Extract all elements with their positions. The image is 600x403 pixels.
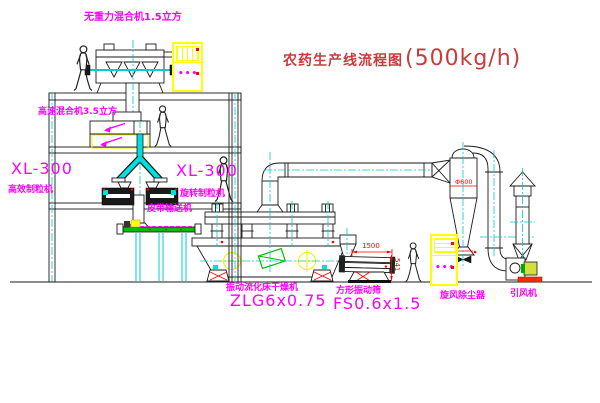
label-fan: 引风机 [510,290,537,299]
title-text: 农药生产线流程图 [283,50,403,70]
fan-motor [524,262,537,275]
power-light [196,48,199,51]
control-cabinet-upper: ••• [172,42,203,92]
page-title: 农药生产线流程图 (500kg/h) [283,46,521,71]
flow-diagram-canvas: ••• ••• 农药生产线流程图 (500kg/h) 无重力混合机1.5立方 高… [0,0,600,403]
power-light [196,72,199,75]
control-cabinet-lower: ••• [430,234,458,286]
label-granulator-left-model: XL-300 [11,161,73,177]
fan-base [518,277,542,282]
label-gravity-mixer: 无重力混合机1.5立方 [84,13,182,23]
conveyor-belt [122,227,196,232]
dim-cyclone-diameter: Φ600 [455,179,473,186]
label-dryer-model: ZLG6x0.75 [230,293,327,309]
label-granulator-right-name: 旋转制粒机 [180,190,225,199]
label-granulator-left-name: 高效制粒机 [8,186,53,195]
exhaust-stack [510,168,535,266]
worker-figure [155,106,171,146]
granulator-chute [133,195,144,223]
label-belt-conveyor: 皮带输送机 [147,205,192,214]
label-granulator-right-model: XL-300 [176,163,238,179]
label-cyclone: 旋风除尘器 [440,292,485,301]
label-screen-model: FS0.6x1.5 [333,296,421,312]
power-light [451,242,454,245]
dim-screen-length: 1500 [362,243,380,250]
cabinet-vent-grill [434,238,456,253]
conveyor-motor [131,220,140,227]
mixer-discharge-chute [126,83,139,113]
title-capacity: (500kg/h) [405,46,521,71]
exhaust-duct [262,163,432,205]
dim-screen-height: 541 [393,258,400,271]
worker-figure [406,243,421,281]
label-high-speed-mixer: 高速混合机3.5立方 [38,108,117,117]
power-light [451,266,454,269]
high-speed-mixer [90,112,167,232]
induced-draft-fan [506,258,542,282]
belt-conveyor [117,220,201,281]
